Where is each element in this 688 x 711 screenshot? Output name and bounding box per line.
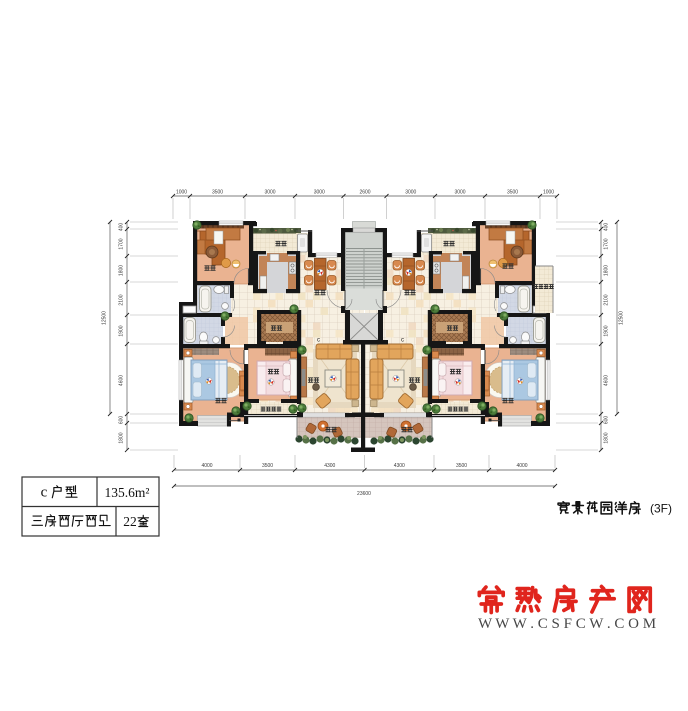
svg-text:3500: 3500 (262, 463, 273, 469)
svg-text:c: c (317, 338, 320, 344)
svg-text:2600: 2600 (359, 190, 370, 196)
svg-text:600: 600 (119, 416, 125, 425)
svg-text:135.6m²: 135.6m² (105, 485, 150, 500)
svg-text:400: 400 (604, 223, 610, 232)
svg-text:3500: 3500 (212, 190, 223, 196)
svg-text:2100: 2100 (604, 294, 610, 305)
svg-text:1000: 1000 (543, 190, 554, 196)
svg-text:1000: 1000 (176, 190, 187, 196)
svg-text:600: 600 (604, 416, 610, 425)
svg-text:(3F): (3F) (650, 502, 672, 516)
svg-text:22: 22 (123, 514, 137, 529)
svg-text:4000: 4000 (201, 463, 212, 469)
svg-text:3000: 3000 (454, 190, 465, 196)
svg-text:12500: 12500 (619, 311, 625, 325)
svg-text:3000: 3000 (264, 190, 275, 196)
svg-text:1800: 1800 (604, 432, 610, 443)
svg-text:4600: 4600 (604, 375, 610, 386)
svg-text:4300: 4300 (394, 463, 405, 469)
svg-text:400: 400 (119, 223, 125, 232)
svg-text:1700: 1700 (604, 238, 610, 249)
svg-text:3500: 3500 (507, 190, 518, 196)
svg-text:4600: 4600 (119, 375, 125, 386)
svg-text:c: c (41, 485, 48, 501)
svg-text:4000: 4000 (516, 463, 527, 469)
svg-text:W W W . C S F C W . C O M: W W W . C S F C W . C O M (478, 616, 656, 632)
svg-text:3500: 3500 (456, 463, 467, 469)
svg-text:c: c (401, 338, 404, 344)
svg-text:1800: 1800 (604, 265, 610, 276)
svg-text:2100: 2100 (119, 294, 125, 305)
svg-text:1800: 1800 (119, 432, 125, 443)
svg-text:1900: 1900 (119, 325, 125, 336)
svg-text:12500: 12500 (102, 311, 108, 325)
svg-text:4300: 4300 (324, 463, 335, 469)
svg-text:1800: 1800 (119, 265, 125, 276)
svg-text:3000: 3000 (405, 190, 416, 196)
svg-text:1900: 1900 (604, 325, 610, 336)
svg-text:1700: 1700 (119, 238, 125, 249)
svg-text:3000: 3000 (314, 190, 325, 196)
svg-text:23600: 23600 (357, 491, 371, 497)
